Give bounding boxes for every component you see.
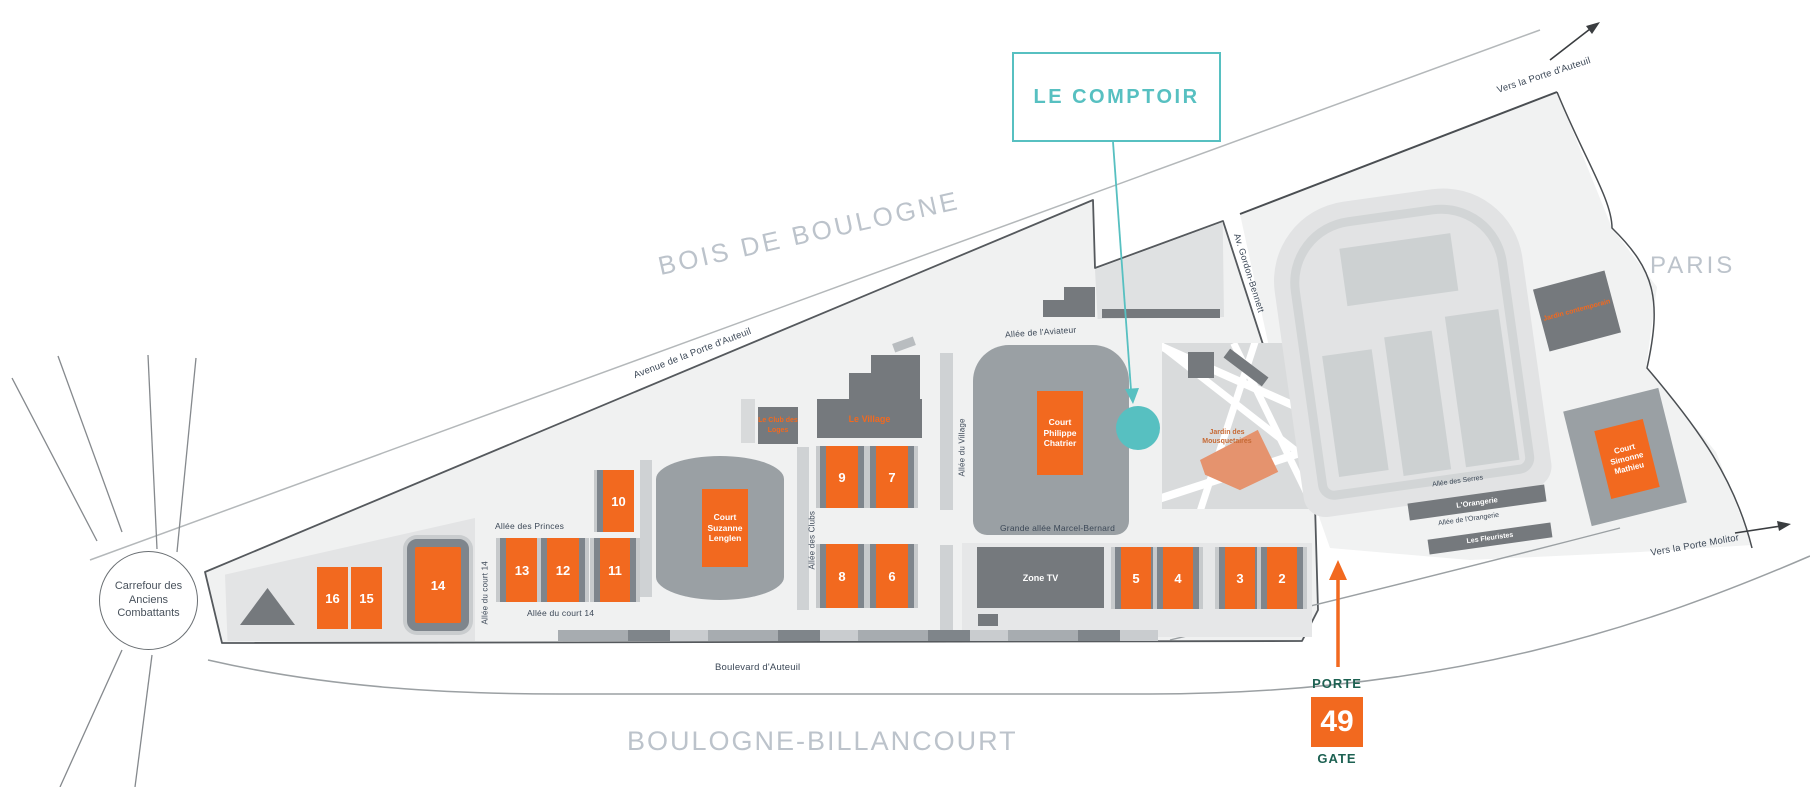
gordon-bennett-label: Av. Gordon-Bennett [1232,232,1266,314]
carrefour-label: Carrefour des Anciens Combattants [100,580,197,621]
court-12: 12 [541,538,585,602]
court-philippe-chatrier-label: Court Philippe Chatrier [1037,391,1083,475]
le-comptoir-callout: LE COMPTOIR [1012,52,1221,142]
court-11: 11 [594,538,636,602]
gate-gate-label: GATE [1297,751,1377,766]
paris-label: PARIS [1650,252,1735,280]
court-13: 13 [500,538,544,602]
allee-court14-horizontal-label: Allée du court 14 [527,608,594,618]
boulogne-billancourt-label: BOULOGNE-BILLANCOURT [627,726,1018,757]
northeast-trapezoid [1095,220,1224,319]
allee-village-strip-south [940,545,953,633]
fleuristes-building: Les Fleuristes [1428,522,1553,554]
le-comptoir-marker [1116,406,1160,450]
roland-garros-map: Jardin des Mousquetaires Court Suzanne L… [0,0,1810,787]
grande-allee-label: Grande allée Marcel-Bernard [1000,523,1115,533]
club-des-loges-building: Le Club des Loges [758,407,798,444]
jardin-mousquetaires-label: Jardin des Mousquetaires [1196,428,1258,446]
carrefour-anciens-combattants: Carrefour des Anciens Combattants [99,551,198,650]
court-5: 5 [1115,547,1157,609]
service-building [978,614,998,626]
vers-porte-auteuil-label: Vers la Porte d'Auteuil [1496,55,1592,96]
service-building [1064,287,1095,317]
allee-clubs-label: Allée des Clubs [808,490,817,570]
court-15: 15 [351,567,382,629]
gate-porte-label: PORTE [1297,676,1377,691]
allee-village-label: Allée du Village [958,397,967,477]
service-bar [1102,309,1220,318]
court-2: 2 [1261,547,1303,609]
court-7: 7 [870,446,914,508]
allee-aviateur-label: Allée de l'Aviateur [1005,325,1077,340]
gate-49-badge: 49 [1311,697,1363,747]
small-kiosk [892,337,916,353]
zone-tv-building: Zone TV [977,547,1104,608]
allee-princes-label: Allée des Princes [495,521,564,531]
court-6: 6 [870,544,914,608]
court-10: 10 [597,470,634,532]
lenglen-west-strip [640,460,652,597]
allee-court14-vertical-label: Allée du court 14 [481,545,490,625]
court-3: 3 [1219,547,1261,609]
court-14: 14 [407,539,469,631]
court-16: 16 [317,567,348,629]
village-annex [871,355,920,401]
bois-de-boulogne-label: BOIS DE BOULOGNE [655,185,962,282]
village-annex [849,373,873,402]
court-suzanne-lenglen-label: Court Suzanne Lenglen [702,489,748,567]
south-edge-pattern [558,630,1158,641]
club-loges-annex [741,399,755,443]
plaza-building [1188,352,1214,378]
vers-porte-molitor-label: Vers la Porte Molitor [1650,532,1740,558]
le-comptoir-label: LE COMPTOIR [1033,81,1199,113]
avenue-porte-auteuil-label: Avenue de la Porte d'Auteuil [632,326,753,381]
court-4: 4 [1157,547,1199,609]
jardin-contemporain-building: Jardin contemporain [1533,271,1621,352]
le-village-building: Le Village [817,399,922,438]
court-9: 9 [820,446,864,508]
court-8: 8 [820,544,864,608]
serres-auteuil-greenhouses [1264,178,1555,520]
boulevard-auteuil-label: Boulevard d'Auteuil [715,662,800,673]
allee-village-strip [940,353,953,510]
